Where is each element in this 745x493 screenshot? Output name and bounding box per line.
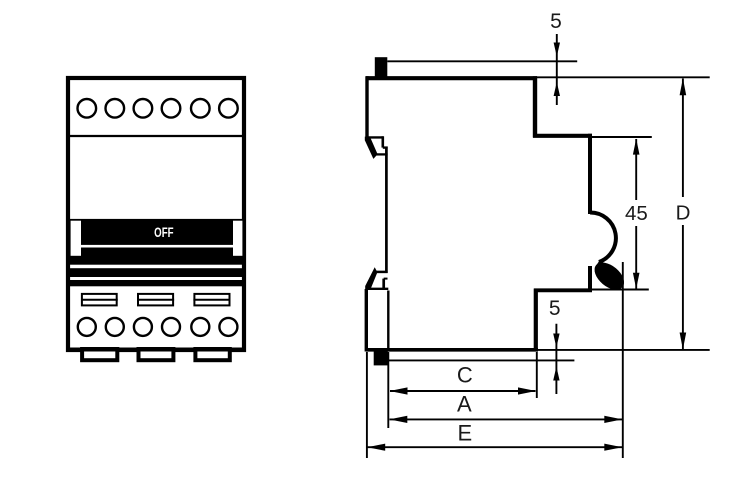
svg-text:5: 5 [550, 10, 562, 33]
svg-text:A: A [457, 392, 472, 417]
svg-text:E: E [457, 420, 472, 445]
svg-text:D: D [676, 201, 691, 224]
svg-text:45: 45 [625, 202, 648, 225]
svg-text:C: C [457, 363, 473, 388]
svg-text:OFF: OFF [154, 226, 173, 241]
svg-text:5: 5 [549, 297, 561, 320]
